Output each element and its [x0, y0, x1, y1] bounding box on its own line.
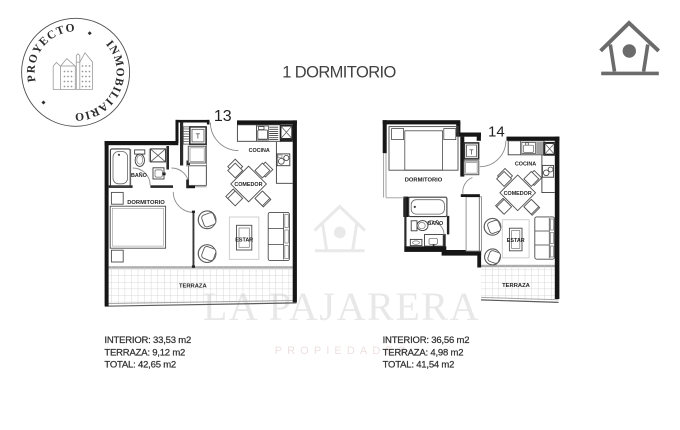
- svg-text:BAÑO: BAÑO: [427, 220, 443, 227]
- svg-text:ESTAR: ESTAR: [235, 238, 253, 244]
- svg-text:T: T: [196, 134, 201, 141]
- svg-text:TERRAZA: 9,12 m2: TERRAZA: 9,12 m2: [104, 347, 185, 358]
- svg-text:1 DORMITORIO: 1 DORMITORIO: [282, 64, 396, 82]
- svg-text:TERRAZA: TERRAZA: [179, 284, 208, 290]
- svg-text:13: 13: [214, 108, 232, 125]
- svg-text:ESTAR: ESTAR: [507, 238, 525, 244]
- svg-text:COMEDOR: COMEDOR: [234, 182, 262, 188]
- svg-text:TERRAZA: 4,98 m2: TERRAZA: 4,98 m2: [383, 347, 464, 358]
- svg-text:DORMITORIO: DORMITORIO: [405, 177, 443, 183]
- svg-text:DORMITORIO: DORMITORIO: [127, 200, 165, 206]
- svg-text:TERRAZA: TERRAZA: [502, 283, 531, 289]
- svg-text:TOTAL: 41,54 m2: TOTAL: 41,54 m2: [383, 359, 455, 370]
- svg-text:INTERIOR: 33,53 m2: INTERIOR: 33,53 m2: [104, 335, 191, 346]
- svg-text:14: 14: [488, 123, 505, 140]
- svg-text:TOTAL: 42,65 m2: TOTAL: 42,65 m2: [104, 359, 176, 370]
- svg-text:BAÑO: BAÑO: [131, 172, 147, 179]
- svg-text:T: T: [469, 149, 474, 156]
- svg-text:COCINA: COCINA: [515, 161, 536, 167]
- svg-text:COMEDOR: COMEDOR: [504, 191, 532, 197]
- svg-text:INTERIOR: 36,56 m2: INTERIOR: 36,56 m2: [383, 335, 470, 346]
- svg-text:COCINA: COCINA: [249, 148, 270, 154]
